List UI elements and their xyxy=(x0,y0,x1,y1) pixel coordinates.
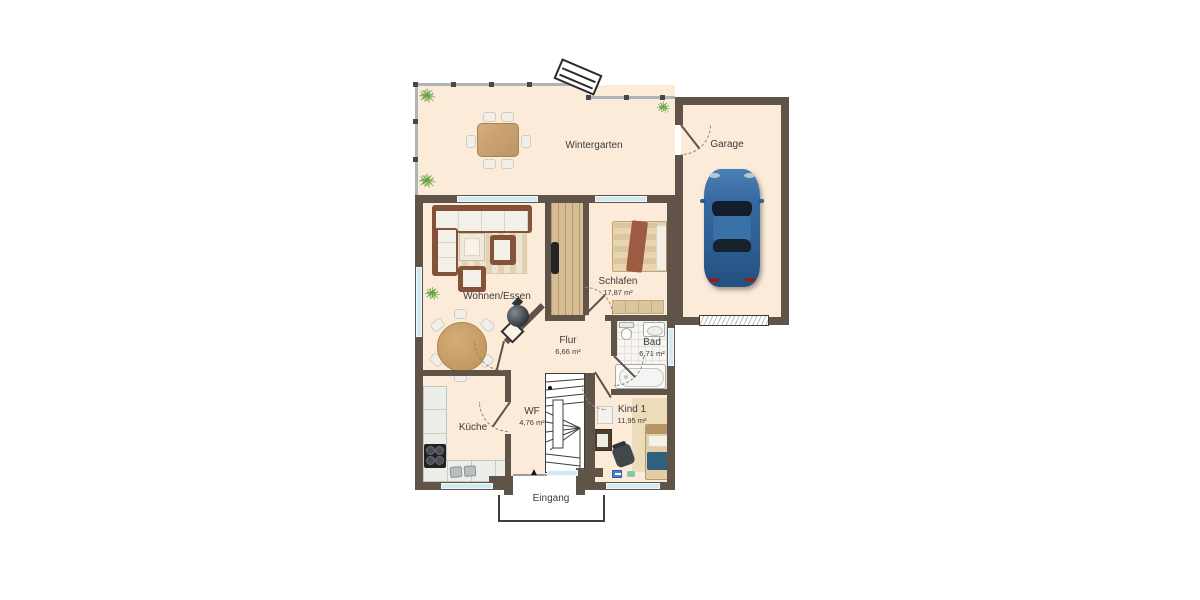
dining-table xyxy=(477,123,519,157)
plant-icon: ✳ xyxy=(420,172,434,189)
window-kids-bottom xyxy=(606,483,660,489)
cooktop xyxy=(424,444,446,468)
desk xyxy=(592,429,612,451)
room-label-flur: Flur 6,66 m² xyxy=(547,335,589,356)
wintergarten-glass-wall-left xyxy=(415,83,418,196)
wall-bath-top xyxy=(611,315,667,321)
room-label-kueche: Küche xyxy=(449,422,497,434)
room-area: 4,76 m² xyxy=(512,419,552,428)
chair xyxy=(466,135,476,148)
armchair xyxy=(490,235,516,265)
plant-icon: ✳ xyxy=(426,286,439,301)
plant-icon: ✳ xyxy=(420,87,434,104)
washbasin xyxy=(643,322,665,337)
wall-kitchen-top xyxy=(419,370,509,376)
car-rear-window xyxy=(713,239,751,252)
car xyxy=(704,169,760,287)
armchair xyxy=(458,266,486,292)
car-roof xyxy=(713,216,751,241)
glass-post xyxy=(451,82,456,87)
sofa xyxy=(432,228,458,276)
glass-post xyxy=(624,95,629,100)
dresser xyxy=(612,300,664,314)
bed xyxy=(612,221,672,272)
coffee-table xyxy=(459,233,485,261)
wall-bedroom-bottom xyxy=(545,315,585,321)
glass-post xyxy=(586,95,591,100)
wood-stove xyxy=(507,305,529,327)
room-label-wintergarten: Wintergarten xyxy=(550,140,638,152)
chair xyxy=(501,112,514,122)
car-mirror xyxy=(758,199,764,203)
toy xyxy=(627,471,635,477)
entrance-arrow-icon: ▲ xyxy=(527,467,541,478)
room-label-eingang: Eingang xyxy=(512,493,590,505)
wall-bath-bottom xyxy=(611,389,667,395)
window-living-top xyxy=(457,196,538,202)
car-headlight xyxy=(709,173,720,178)
car-mirror xyxy=(700,199,706,203)
glass-post xyxy=(413,119,418,124)
glass-post xyxy=(413,82,418,87)
porch-line-right xyxy=(603,495,605,522)
floor-plan: ✳ ✳ ✳ ✳ xyxy=(0,0,1200,600)
room-area: 6,66 m² xyxy=(547,348,589,357)
porch-line-bottom xyxy=(498,520,605,522)
room-label-wf: WF 4,76 m² xyxy=(512,406,552,427)
room-label-kind1: Kind 1 11,95 m² xyxy=(604,404,660,425)
garage-wall-left-lower xyxy=(675,155,683,325)
chair xyxy=(483,159,496,169)
wall-living-bedroom xyxy=(545,203,551,315)
wall-left xyxy=(415,195,423,490)
glass-post xyxy=(527,82,532,87)
room-label-garage: Garage xyxy=(702,139,752,151)
room-label-bad: Bad 6,71 m² xyxy=(632,337,672,358)
garage-wall-left-upper xyxy=(675,97,683,125)
car-headlight xyxy=(744,173,755,178)
window-living-left xyxy=(416,267,422,337)
wintergarten-glass-wall-top xyxy=(416,83,572,86)
wall-wf-kitchen-lower xyxy=(505,434,511,482)
window-kitchen-bottom xyxy=(441,483,493,489)
car-taillight xyxy=(745,278,755,282)
room-area: 17,87 m² xyxy=(589,289,647,298)
tv xyxy=(551,242,559,274)
kitchen-sink xyxy=(450,463,479,480)
chair xyxy=(521,135,531,148)
wall-bath-left xyxy=(611,321,617,356)
chair xyxy=(501,159,514,169)
toy-box xyxy=(612,470,622,478)
chair xyxy=(454,309,467,319)
plant-icon: ✳ xyxy=(658,100,669,113)
room-label-schlafen: Schlafen 17,87 m² xyxy=(589,276,647,297)
room-area: 11,95 m² xyxy=(604,417,660,426)
garage-wall-right xyxy=(781,97,789,325)
glass-post xyxy=(413,157,418,162)
chair xyxy=(483,112,496,122)
room-area: 6,71 m² xyxy=(632,350,672,359)
garage-door xyxy=(699,315,769,326)
wall-wf-kitchen-upper xyxy=(505,370,511,402)
garage-wall-top xyxy=(675,97,789,105)
porch-line-left xyxy=(498,495,500,522)
room-label-wohnen-essen: Wohnen/Essen xyxy=(451,291,543,303)
glass-post xyxy=(489,82,494,87)
car-taillight xyxy=(709,278,719,282)
window-stairs-sidelight xyxy=(547,470,578,476)
window-bedroom-top xyxy=(595,196,647,202)
